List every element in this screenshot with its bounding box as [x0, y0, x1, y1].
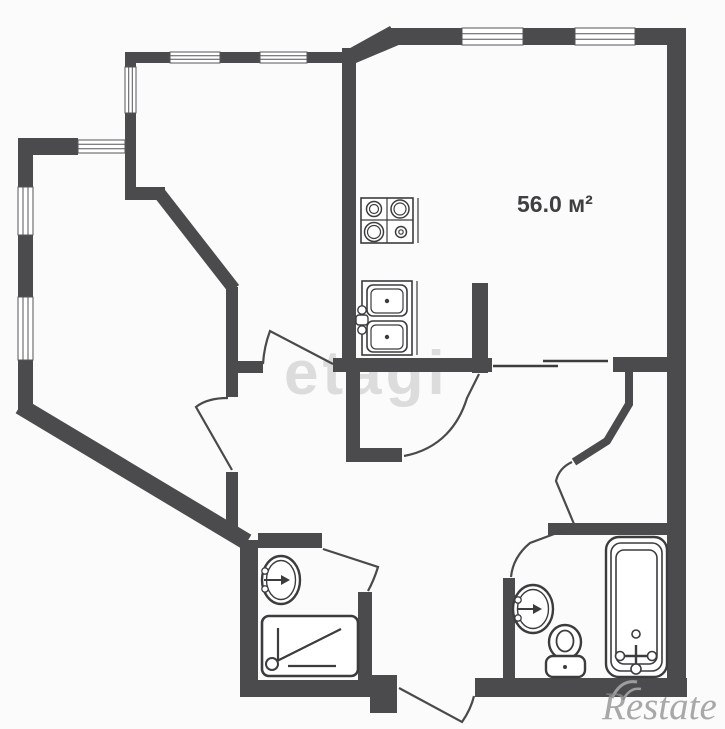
wall-shower-left	[240, 540, 258, 697]
window-leftroom-top	[78, 140, 125, 153]
floorplan-drawing	[0, 0, 725, 725]
door-shower	[323, 549, 378, 591]
wall-kitchen-foot	[346, 448, 402, 462]
sink-faucet-handle	[358, 326, 366, 334]
wall-kitchen-partition-upper	[342, 48, 356, 358]
window-left-1	[18, 187, 33, 235]
wall-vestibule-block	[370, 675, 397, 713]
wall-topleft-room-top	[125, 52, 353, 63]
window-top-2	[575, 28, 635, 45]
sink-drain	[385, 335, 389, 339]
wall-pilaster-stub	[472, 283, 488, 373]
door-bedroom	[556, 462, 574, 524]
wall-bath-left	[503, 578, 515, 678]
door-entrance	[399, 688, 474, 722]
bathtub-mixer-knob	[648, 652, 657, 661]
wall-left-exterior	[18, 138, 33, 414]
wall-kitchen-partition-lower	[346, 372, 360, 455]
bathtub-mixer-knob	[616, 652, 625, 661]
wall-right-exterior	[667, 28, 686, 697]
wall-outer-diagonal	[20, 406, 247, 542]
wall-hall-stub	[238, 361, 263, 373]
bathtub-mixer-knob	[631, 664, 641, 674]
toilet-button	[563, 665, 567, 669]
sink-faucet-handle	[358, 306, 366, 314]
sink-faucet-spout	[356, 315, 368, 325]
floorplan-page: { "canvas": { "w": 725, "h": 725, "bg": …	[0, 0, 725, 725]
window-topleft-1	[170, 52, 220, 63]
wall-hall-left-lower	[226, 472, 238, 534]
area-label: 56.0 м²	[517, 191, 593, 218]
door-leftroom	[196, 398, 232, 470]
wall-shower-top	[258, 533, 322, 548]
washbasin-bath-handle	[515, 597, 521, 603]
wall-bedroom-curve	[574, 372, 629, 462]
wall-bedroom-block	[613, 357, 667, 372]
window-topleft-2	[260, 52, 307, 63]
wall-hall-left-upper	[226, 287, 238, 397]
shower-drain	[266, 658, 278, 670]
window-corner-vertical	[125, 67, 136, 113]
wall-top-main	[388, 28, 686, 45]
wall-shower-right	[358, 592, 372, 680]
washbasin-shower-handle	[262, 586, 268, 592]
wall-hall-top	[333, 358, 492, 372]
sink-drain	[385, 299, 389, 303]
window-left-2	[18, 297, 33, 360]
wall-inner-diagonal	[160, 194, 234, 289]
watermark-restate: Restate	[602, 684, 717, 729]
washbasin-shower-handle	[262, 568, 268, 574]
door-topleft-room	[263, 331, 333, 364]
door-kitchen-passage	[404, 374, 479, 456]
washbasin-bath-handle	[515, 615, 521, 621]
window-top-1	[462, 28, 523, 45]
